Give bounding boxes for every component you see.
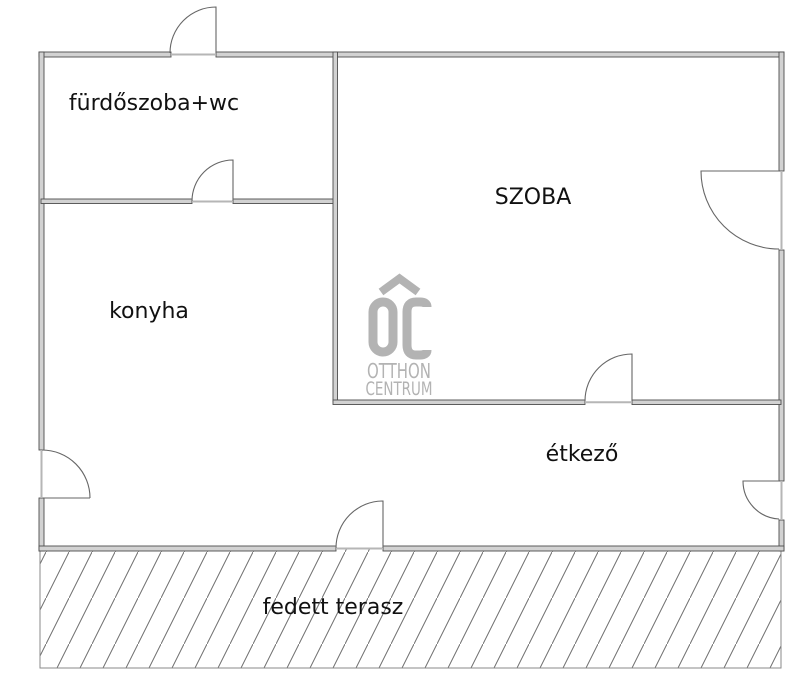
wall-top-left-segment [39,52,171,57]
label-terrace: fedett terasz [263,595,404,620]
wall-top-right-segment [216,52,784,57]
wall-room-bottom-left [333,400,585,405]
wall-left-lower-segment [39,498,44,551]
door-terrace [336,501,383,548]
label-dining: étkező [546,442,619,467]
terrace-hatch-area [40,549,781,668]
wall-right-middle-segment [779,250,784,481]
label-bathroom: fürdőszoba+wc [69,91,239,116]
floorplan-page: OC OTTHON CENTRUM fürdőszoba+wc SZOBA ko… [0,0,800,674]
door-room-right [701,171,779,249]
watermark-letter-c [407,302,427,355]
otthon-centrum-watermark: OC OTTHON CENTRUM [366,279,433,401]
watermark-letter-o [373,302,393,352]
wall-bottom-left-segment [39,546,336,551]
door-dining-right [743,481,779,519]
wall-bottom-right-segment [383,546,784,551]
door-left-exterior [42,450,90,498]
floorplan-canvas: OC OTTHON CENTRUM fürdőszoba+wc SZOBA ko… [0,0,800,674]
wall-left-upper-segment [39,52,44,450]
door-room-bottom [585,354,632,401]
label-room: SZOBA [495,185,572,210]
doors-group [42,7,779,548]
wall-right-upper-segment [779,52,784,171]
watermark-roof-chevron-icon [381,279,418,293]
watermark-text-centrum: CENTRUM [366,378,433,400]
wall-bathroom-divider-left [41,199,192,204]
wall-bathroom-divider-right [233,199,335,204]
door-bathroom [192,160,233,201]
door-top-exterior [170,7,216,53]
room-labels-group: fürdőszoba+wc SZOBA konyha étkező fedett… [69,91,618,620]
wall-room-vertical [333,52,338,402]
label-kitchen: konyha [109,299,189,324]
wall-room-bottom-right [632,400,781,405]
